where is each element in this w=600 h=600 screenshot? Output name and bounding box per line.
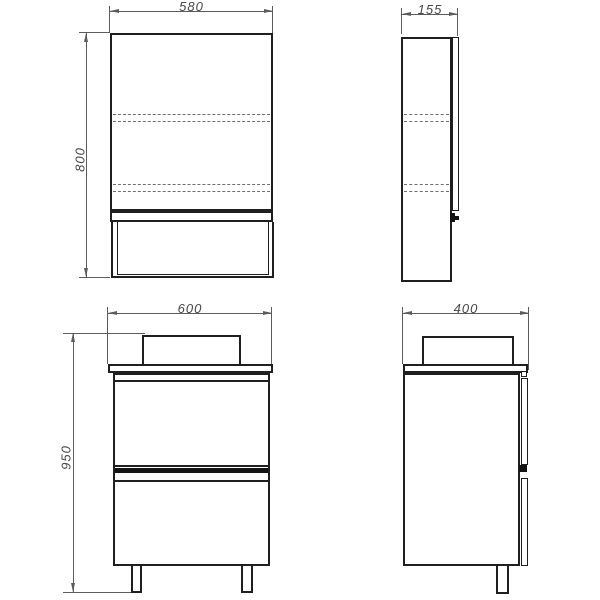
vanity-side-body [403,373,520,566]
furniture-dimension-drawing: 580 800 155 [0,0,600,600]
cabinet-leg [496,566,509,594]
countertop-edge-step [521,372,527,377]
sink-basin-profile [422,336,514,366]
drawer-front-profile-top [521,378,528,465]
extension-line [528,307,529,370]
drawer-handle [519,465,527,472]
vanity-side-view: 400 [0,0,600,600]
extension-line [402,307,403,364]
drawer-front-profile-bottom [521,478,528,566]
depth-dimension-label: 400 [403,302,529,315]
countertop-profile [403,364,528,373]
